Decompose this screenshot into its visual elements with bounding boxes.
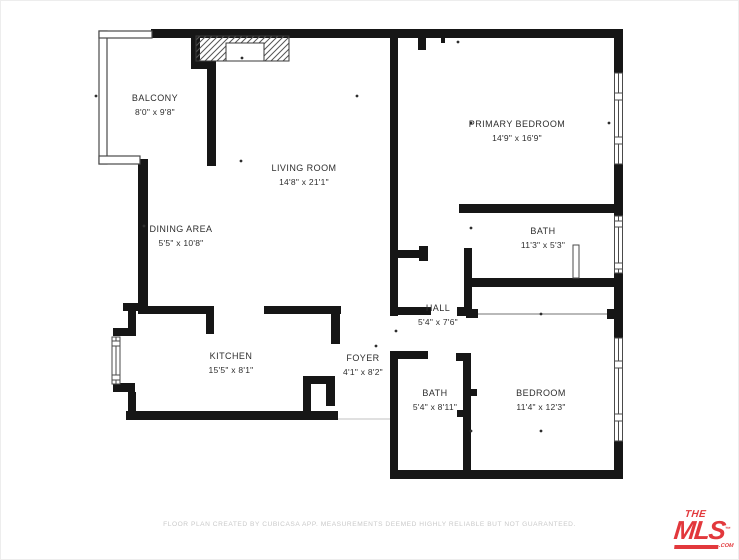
room-label-dining-area: DINING AREA 5'5" x 10'8" — [150, 225, 213, 248]
room-label-hall: HALL 5'4" x 7'6" — [418, 304, 458, 327]
room-name: DINING AREA — [150, 225, 213, 234]
room-label-bath-upper: BATH 11'3" x 5'3" — [521, 227, 565, 250]
room-name: BEDROOM — [516, 389, 566, 398]
room-name: BALCONY — [132, 94, 178, 103]
room-name: BATH — [413, 389, 457, 398]
room-dims: 8'0" x 9'8" — [132, 108, 178, 117]
room-name: LIVING ROOM — [272, 164, 337, 173]
room-dims: 15'5" x 8'1" — [209, 366, 254, 375]
room-name: BATH — [521, 227, 565, 236]
room-dims: 5'4" x 8'11" — [413, 403, 457, 412]
room-name: KITCHEN — [209, 352, 254, 361]
mls-logo: THE MLS™ .COM — [663, 507, 736, 555]
room-label-primary-bedroom: PRIMARY BEDROOM 14'9" x 16'9" — [469, 120, 565, 143]
room-dims: 14'8" x 21'1" — [272, 178, 337, 187]
room-label-kitchen: KITCHEN 15'5" x 8'1" — [209, 352, 254, 375]
room-label-balcony: BALCONY 8'0" x 9'8" — [132, 94, 178, 117]
mls-logo-row: MLS™ — [673, 520, 736, 545]
room-label-foyer: FOYER 4'1" x 8'2" — [343, 354, 383, 377]
room-dims: 11'3" x 5'3" — [521, 241, 565, 250]
trademark-symbol: ™ — [724, 527, 731, 533]
mls-logo-com: .COM — [719, 543, 734, 549]
floorplan-image: BALCONY 8'0" x 9'8" LIVING ROOM 14'8" x … — [0, 0, 739, 560]
mls-logo-mls: MLS — [673, 515, 727, 545]
room-dims: 14'9" x 16'9" — [469, 134, 565, 143]
room-name: FOYER — [343, 354, 383, 363]
room-dims: 4'1" x 8'2" — [343, 368, 383, 377]
floorplan-drawing — [1, 1, 739, 560]
room-label-bath-lower: BATH 5'4" x 8'11" — [413, 389, 457, 412]
room-dims: 11'4" x 12'3" — [516, 403, 566, 412]
mls-logo-underline: .COM — [674, 545, 718, 549]
room-name: PRIMARY BEDROOM — [469, 120, 565, 129]
room-label-bedroom: BEDROOM 11'4" x 12'3" — [516, 389, 566, 412]
disclaimer-text: FLOOR PLAN CREATED BY CUBICASA APP. MEAS… — [1, 521, 738, 528]
room-dims: 5'5" x 10'8" — [150, 239, 213, 248]
room-dims: 5'4" x 7'6" — [418, 318, 458, 327]
door-icon — [573, 245, 579, 278]
room-label-living-room: LIVING ROOM 14'8" x 21'1" — [272, 164, 337, 187]
room-name: HALL — [418, 304, 458, 313]
